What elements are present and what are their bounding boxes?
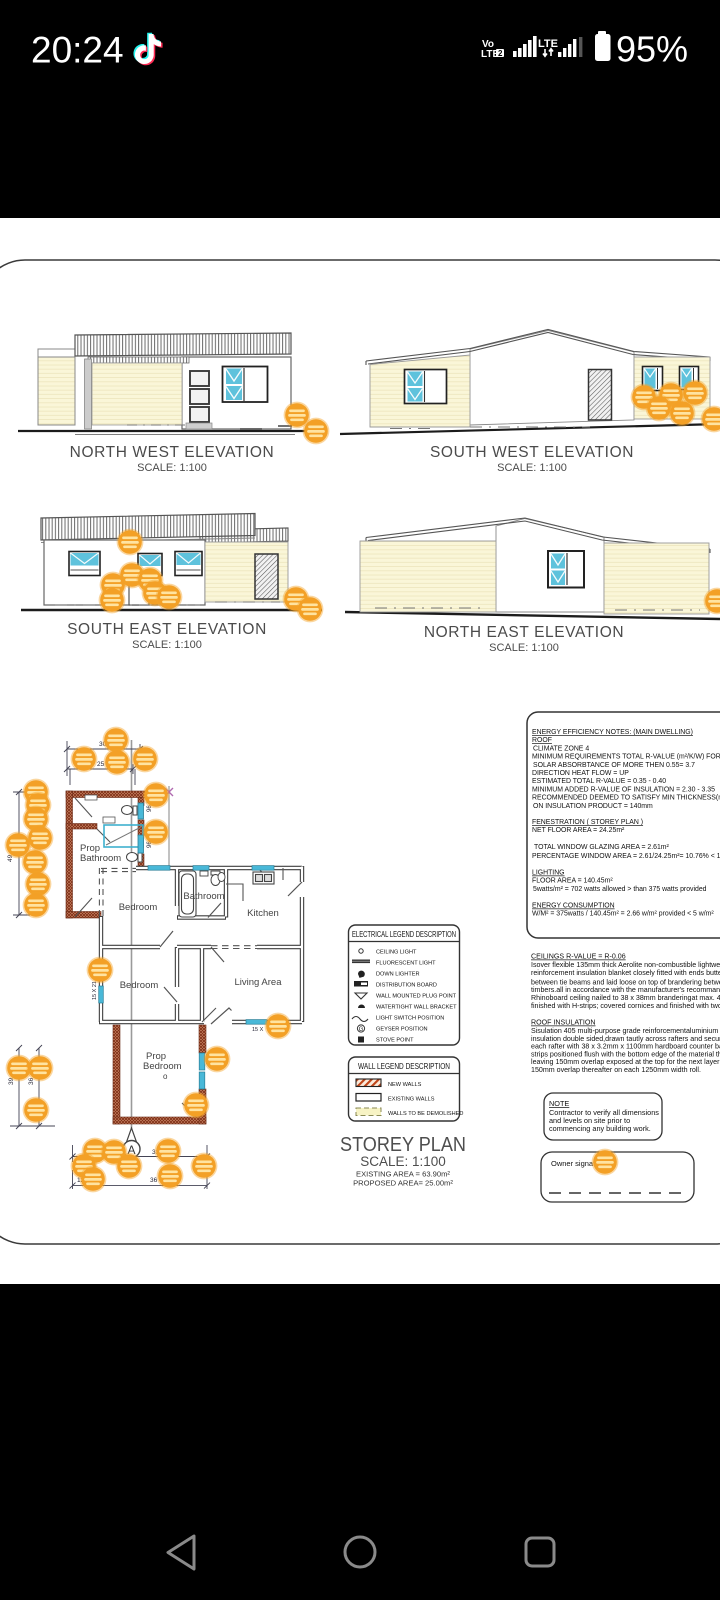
- svg-text:Bathroom: Bathroom: [80, 853, 121, 864]
- svg-text:finished with H-strips; covere: finished with H-strips; covered cornices…: [531, 1002, 720, 1010]
- svg-text:Rhinoboard ceiling nailed to 3: Rhinoboard ceiling nailed to 38 x 38mm b…: [531, 994, 720, 1002]
- svg-text:150mm overlap thereafter on ea: 150mm overlap thereafter on each 1250mm …: [531, 1066, 701, 1074]
- svg-text:GEYSER POSITION: GEYSER POSITION: [376, 1027, 428, 1033]
- svg-text:ESTIMATED TOTAL R-VALUE = 0.35: ESTIMATED TOTAL R-VALUE = 0.35 - 0.40: [532, 778, 666, 785]
- svg-text:DOWN LIGHTER: DOWN LIGHTER: [376, 972, 420, 978]
- svg-text:EXISTING WALLS: EXISTING WALLS: [388, 1097, 435, 1103]
- svg-text:each rafter with 38 x 3.2mm x: each rafter with 38 x 3.2mm x 1100mm har…: [531, 1043, 720, 1051]
- svg-text:o: o: [163, 1072, 168, 1081]
- svg-text:Living Area: Living Area: [234, 977, 282, 988]
- svg-text:36: 36: [150, 1177, 158, 1184]
- svg-text:DIRECTION HEAT FLOW = UP: DIRECTION HEAT FLOW = UP: [532, 770, 629, 777]
- svg-text:between tie beams and laid loo: between tie beams and laid loose on top …: [531, 978, 720, 986]
- svg-text:WATERTIGHT WALL BRACKET: WATERTIGHT WALL BRACKET: [376, 1005, 457, 1011]
- svg-text:DISTRIBUTION BOARD: DISTRIBUTION BOARD: [376, 983, 437, 989]
- svg-text:PERCENTAGE WINDOW AREA = 2.6: PERCENTAGE WINDOW AREA = 2.61/24.25m²= 1…: [532, 853, 720, 860]
- svg-text:SOUTH EAST ELEVATION: SOUTH EAST ELEVATION: [67, 621, 267, 638]
- svg-text:15 X: 15 X: [252, 1027, 264, 1033]
- svg-text:NET FLOOR AREA = 24.25m²: NET FLOOR AREA = 24.25m²: [532, 827, 625, 834]
- svg-text:SCALE: 1:100: SCALE: 1:100: [137, 462, 207, 474]
- svg-text:RECOMMENDED DEEMED TO SATISFY: RECOMMENDED DEEMED TO SATISFY MIN THICKN…: [532, 795, 720, 802]
- svg-text:2: 2: [498, 49, 503, 58]
- svg-text:reinforcement insulation blank: reinforcement insulation blanket closely…: [531, 969, 720, 977]
- svg-text:ON INSULATION PRODUCT = 140mm: ON INSULATION PRODUCT = 140mm: [533, 803, 653, 810]
- svg-text:STOREY PLAN: STOREY PLAN: [340, 1134, 466, 1156]
- svg-text:strips positioned flush with t: strips positioned flush with the bottom …: [531, 1050, 720, 1058]
- svg-text:MINIMUM ADDED R-VALUE OF INSUL: MINIMUM ADDED R-VALUE OF INSULATION = 2.…: [532, 786, 715, 793]
- svg-text:ENERGY EFFICIENCY NOTES: (MAIN: ENERGY EFFICIENCY NOTES: (MAIN DWELLING): [532, 729, 693, 736]
- svg-text:WALLS TO BE DEMOLISHED: WALLS TO BE DEMOLISHED: [388, 1111, 463, 1117]
- svg-text:LTE: LTE: [538, 38, 558, 50]
- svg-text:5watts/m² = 702 watts allowe: 5watts/m² = 702 watts allowed > than 375…: [533, 886, 707, 893]
- svg-text:STOVE POINT: STOVE POINT: [376, 1038, 414, 1044]
- svg-text:ROOF: ROOF: [532, 737, 552, 744]
- svg-text:SCALE: 1:100: SCALE: 1:100: [497, 462, 567, 474]
- svg-text:Bedroom: Bedroom: [143, 1061, 182, 1072]
- svg-text:FLOOR AREA = 140.45m²: FLOOR AREA = 140.45m²: [532, 878, 613, 885]
- svg-text:TOTAL WINDOW GLAZING AREA =: TOTAL WINDOW GLAZING AREA = 2.61m²: [534, 844, 670, 851]
- svg-text:NORTH WEST ELEVATION: NORTH WEST ELEVATION: [70, 444, 275, 461]
- svg-text:Bedroom: Bedroom: [119, 902, 158, 913]
- svg-text:Bedroom: Bedroom: [120, 980, 159, 991]
- svg-text:MINIMUM REQUIREMENTS TOTAL R-V: MINIMUM REQUIREMENTS TOTAL R-VALUE (m²/K…: [532, 754, 720, 761]
- svg-text:15 X 21: 15 X 21: [92, 981, 98, 1000]
- svg-text:Kitchen: Kitchen: [247, 908, 279, 919]
- svg-text:WALL LEGEND DESCRIPTION: WALL LEGEND DESCRIPTION: [358, 1062, 450, 1071]
- svg-text:Isover flexible 135mm thick Ae: Isover flexible 135mm thick Aerolite non…: [531, 961, 720, 969]
- svg-text:commencing any building work.: commencing any building work.: [549, 1124, 651, 1133]
- svg-text:LIGHTING: LIGHTING: [532, 870, 565, 877]
- svg-text:insulation double sided,drawn: insulation double sided,drawn tautly acr…: [531, 1035, 720, 1043]
- svg-text:CEILINGS R-VALUE = R-0.06: CEILINGS R-VALUE = R-0.06: [531, 953, 626, 961]
- svg-text:NOTE: NOTE: [549, 1099, 569, 1108]
- svg-text:Bathroom: Bathroom: [183, 891, 224, 902]
- svg-text:CLIMATE ZONE 4: CLIMATE ZONE 4: [533, 745, 589, 752]
- svg-text:G: G: [359, 1027, 364, 1033]
- svg-text:95%: 95%: [616, 29, 688, 70]
- svg-text:NEW WALLS: NEW WALLS: [388, 1082, 422, 1088]
- svg-text:timbers.all in accordance with: timbers.all in accordance with the manuf…: [531, 986, 720, 994]
- svg-text:NORTH EAST ELEVATION: NORTH EAST ELEVATION: [424, 624, 624, 641]
- svg-text:SCALE: 1:100: SCALE: 1:100: [360, 1154, 446, 1169]
- svg-text:W/M² = 375watts / 140.45m²: W/M² = 375watts / 140.45m² = 2.66 w/m² p…: [532, 911, 714, 918]
- svg-text:PROPOSED AREA= 25.00m²: PROPOSED AREA= 25.00m²: [353, 1179, 453, 1188]
- svg-text:CEILING LIGHT: CEILING LIGHT: [376, 950, 417, 956]
- svg-text:SOUTH WEST ELEVATION: SOUTH WEST ELEVATION: [430, 444, 634, 461]
- svg-text:LIGHT SWITCH POSITION: LIGHT SWITCH POSITION: [376, 1016, 444, 1022]
- svg-text:ROOF INSULATION: ROOF INSULATION: [531, 1019, 596, 1027]
- svg-text:WALL MOUNTED PLUG POINT: WALL MOUNTED PLUG POINT: [376, 994, 457, 1000]
- svg-text:25: 25: [97, 761, 105, 768]
- svg-text:FLUORESCENT LIGHT: FLUORESCENT LIGHT: [376, 961, 436, 967]
- svg-text:SCALE: 1:100: SCALE: 1:100: [489, 642, 559, 654]
- svg-text:leaving 150mm overlap exposed: leaving 150mm overlap exposed at the top…: [531, 1058, 720, 1066]
- svg-text:ELECTRICAL LEGEND DESCRIPTION: ELECTRICAL LEGEND DESCRIPTION: [352, 930, 456, 939]
- svg-text:EXISTING AREA = 63.90m²: EXISTING AREA = 63.90m²: [356, 1170, 450, 1179]
- svg-text:SCALE: 1:100: SCALE: 1:100: [132, 639, 202, 651]
- svg-text:Sisulation 405 multi-purpose g: Sisulation 405 multi-purpose grade reinf…: [531, 1027, 720, 1035]
- svg-text:ENERGY CONSUMPTION: ENERGY CONSUMPTION: [532, 903, 615, 910]
- svg-text:FENESTRATION ( STOREY PLAN ): FENESTRATION ( STOREY PLAN ): [532, 819, 643, 826]
- svg-text:SOLAR ABSORBTANCE OF MORE THEN: SOLAR ABSORBTANCE OF MORE THEN 0.55= 3.7: [533, 762, 695, 769]
- svg-text:20:24: 20:24: [31, 30, 124, 71]
